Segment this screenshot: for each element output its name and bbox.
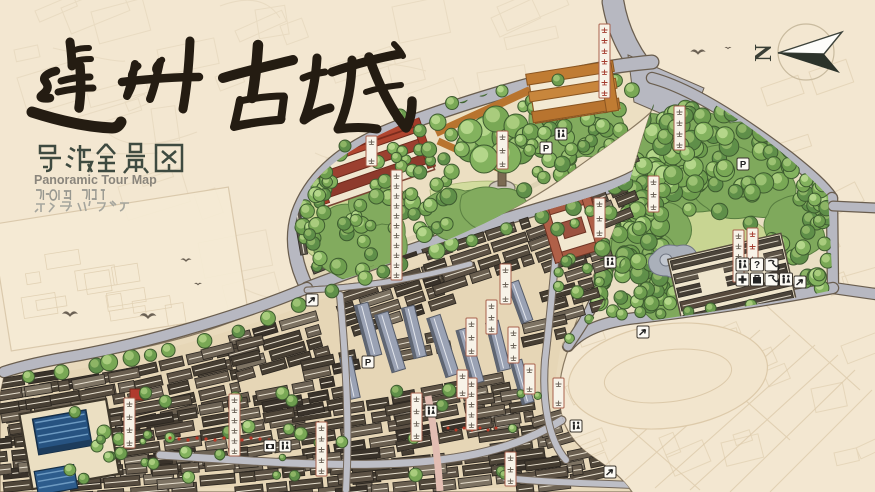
svg-text:Panoramic Tour Map: Panoramic Tour Map: [34, 173, 157, 187]
svg-text:N: N: [751, 44, 777, 62]
svg-text:?: ?: [754, 260, 760, 271]
svg-text:P: P: [543, 143, 550, 154]
svg-text:P: P: [365, 357, 372, 368]
svg-text:P: P: [740, 159, 747, 170]
